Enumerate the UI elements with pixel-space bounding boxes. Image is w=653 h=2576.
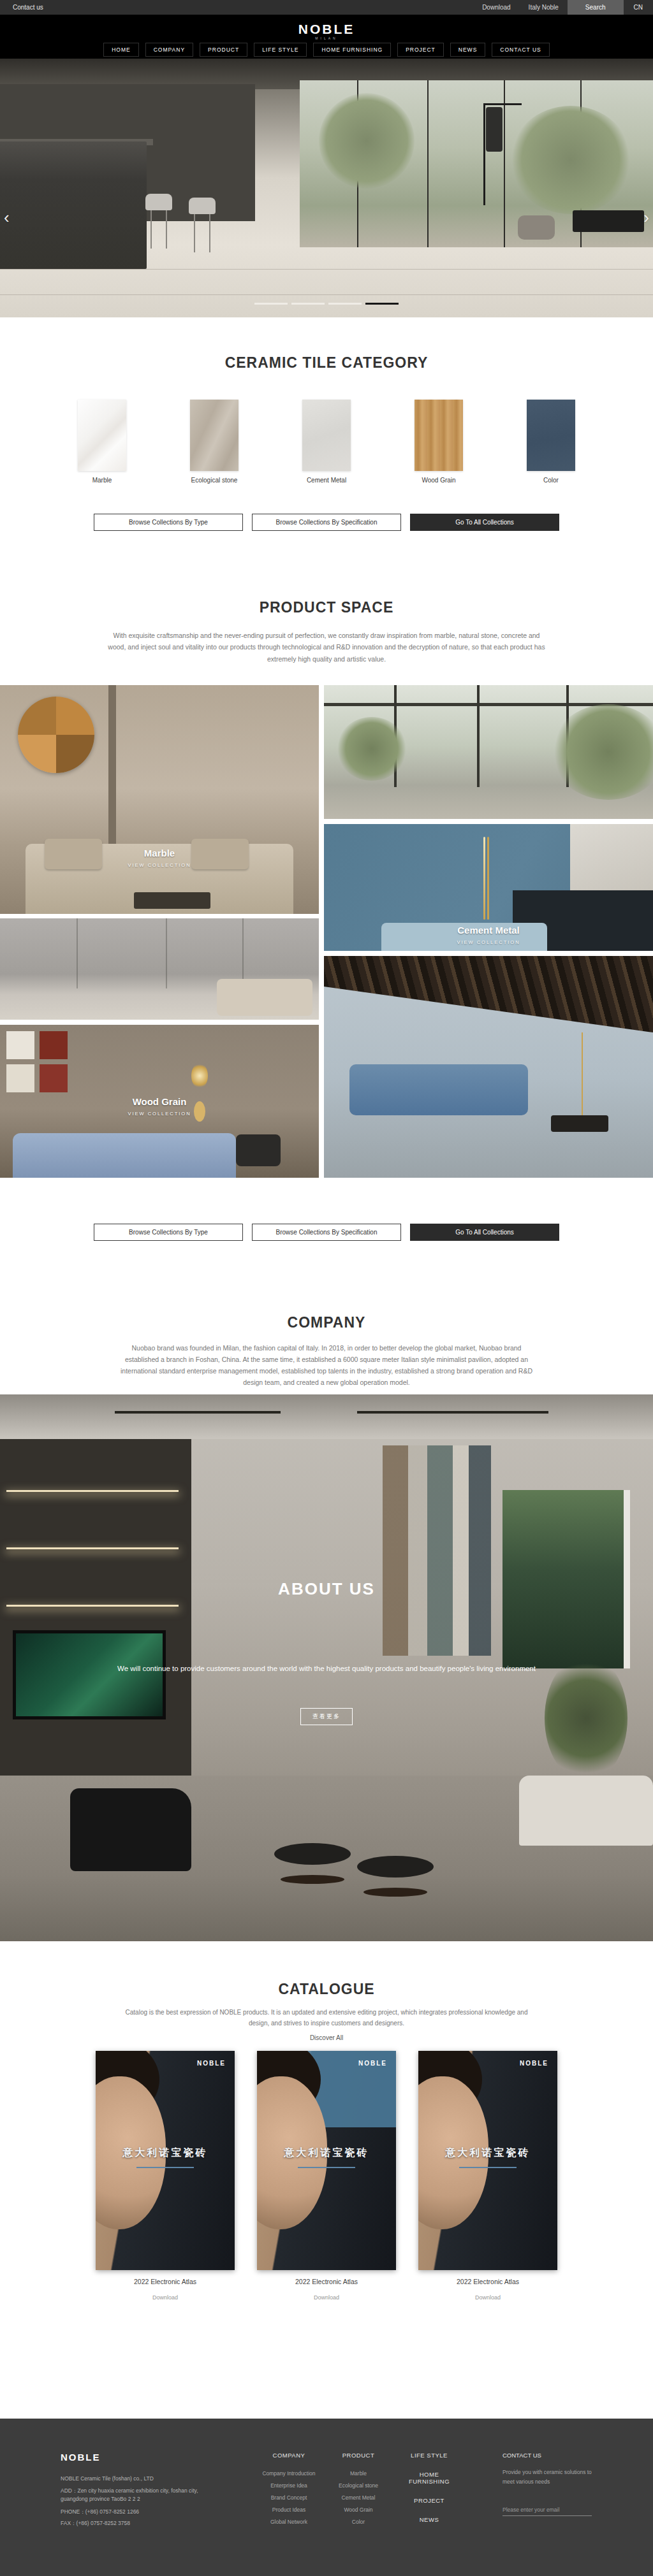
- hero-stool-art: [189, 198, 216, 214]
- footer-link-cement-metal[interactable]: Cement Metal: [326, 2492, 390, 2504]
- space-card-wood-grain[interactable]: Wood Grain VIEW COLLECTION: [0, 1025, 319, 1178]
- search-button[interactable]: Search: [568, 0, 624, 15]
- white-sofa-art: [519, 1776, 653, 1846]
- tile-swatch-wood-grain[interactable]: [415, 400, 463, 471]
- download-link[interactable]: Download: [473, 4, 519, 11]
- nav-item-contact-us[interactable]: CONTACT US: [492, 43, 549, 57]
- catalogue-covers: NOBLE 意大利诺宝瓷砖 NOBLE 意大利诺宝瓷砖 NOBLE 意大利诺宝瓷…: [0, 2051, 653, 2270]
- cover-title-cn: 意大利诺宝瓷砖: [96, 2146, 235, 2160]
- footer-column-company: COMPANY Company Introduction Enterprise …: [247, 2452, 330, 2528]
- space-card-label: Cement Metal: [324, 925, 653, 936]
- category-section-title: CERAMIC TILE CATEGORY: [0, 354, 653, 372]
- category-tile-labels: Marble Ecological stone Cement Metal Woo…: [0, 477, 653, 484]
- cover-brand-logo: NOBLE: [358, 2060, 387, 2067]
- space-card-marble[interactable]: Marble VIEW COLLECTION: [0, 685, 319, 914]
- catalogue-description: Catalog is the best expression of NOBLE …: [122, 2008, 531, 2029]
- space-card-concrete[interactable]: [0, 918, 319, 1020]
- tile-swatch-marble[interactable]: [78, 400, 126, 471]
- category-tiles: [0, 400, 653, 471]
- nav-item-life-style[interactable]: LIFE STYLE: [254, 43, 307, 57]
- top-utility-bar: Contact us Download Italy Noble Search C…: [0, 0, 653, 15]
- space-card-label: Wood Grain: [0, 1096, 319, 1107]
- newsletter-email-input[interactable]: [503, 2504, 592, 2516]
- tile-swatch-ecological-stone[interactable]: [190, 400, 238, 471]
- wall-art-circle: [18, 697, 94, 773]
- product-space-grid: Marble VIEW COLLECTION Cement Metal: [0, 685, 653, 1178]
- nav-item-product[interactable]: PRODUCT: [200, 43, 247, 57]
- footer-link-global-network[interactable]: Global Network: [247, 2516, 330, 2528]
- hero-pouf-art: [518, 215, 555, 240]
- hero-slide-indicators: [0, 303, 653, 305]
- footer-phone: PHONE：(+86) 0757-8252 1266: [61, 2508, 220, 2516]
- footer-column-product: PRODUCT Marble Ecological stone Cement M…: [326, 2452, 390, 2528]
- hero-stool-art: [145, 194, 172, 210]
- browse-by-type-button[interactable]: Browse Collections By Type: [94, 1224, 243, 1241]
- catalogue-section-title: CATALOGUE: [0, 1981, 653, 1998]
- all-collections-button[interactable]: Go To All Collections: [410, 514, 559, 531]
- footer-link-marble[interactable]: Marble: [326, 2468, 390, 2480]
- topbar-right-group: Download Italy Noble Search CN: [473, 0, 653, 15]
- tile-label-ecological-stone: Ecological stone: [190, 477, 238, 484]
- browse-by-type-button[interactable]: Browse Collections By Type: [94, 514, 243, 531]
- space-card-exterior[interactable]: [324, 685, 653, 819]
- footer-contact-column: CONTACT US Provide you with ceramic solu…: [503, 2452, 598, 2516]
- footer-link-enterprise-idea[interactable]: Enterprise Idea: [247, 2480, 330, 2492]
- tile-label-wood-grain: Wood Grain: [415, 477, 463, 484]
- tile-label-cement-metal: Cement Metal: [302, 477, 351, 484]
- company-section-title: COMPANY: [0, 1314, 653, 1331]
- view-collection-link[interactable]: VIEW COLLECTION: [324, 939, 653, 945]
- footer-fax: FAX：(+86) 0757-8252 3758: [61, 2519, 220, 2528]
- nav-item-news[interactable]: NEWS: [450, 43, 486, 57]
- italy-noble-link[interactable]: Italy Noble: [520, 4, 568, 11]
- main-nav: HOME COMPANY PRODUCT LIFE STYLE HOME FUR…: [0, 43, 653, 57]
- catalogue-item-title: 2022 Electronic Atlas: [257, 2278, 396, 2285]
- footer-link-color[interactable]: Color: [326, 2516, 390, 2528]
- footer-column-title: COMPANY: [247, 2452, 330, 2459]
- catalogue-item-title: 2022 Electronic Atlas: [418, 2278, 557, 2285]
- browse-by-specification-button[interactable]: Browse Collections By Specification: [252, 1224, 401, 1241]
- slide-indicator-3[interactable]: [328, 303, 362, 305]
- about-us-banner: ABOUT US We will continue to provide cus…: [0, 1394, 653, 1941]
- footer-link-project[interactable]: PROJECT: [400, 2497, 458, 2504]
- showroom-shelves-art: [0, 1439, 191, 1796]
- footer-column-title: PRODUCT: [326, 2452, 390, 2459]
- footer-address: ADD：Zen city huaxia ceramic exhibition c…: [61, 2487, 220, 2503]
- footer-link-brand-concept[interactable]: Brand Concept: [247, 2492, 330, 2504]
- cover-title-cn: 意大利诺宝瓷砖: [257, 2146, 396, 2160]
- footer-link-home-furnishing[interactable]: HOME FURNISHING: [400, 2471, 458, 2485]
- catalogue-item-title: 2022 Electronic Atlas: [96, 2278, 235, 2285]
- site-footer: NOBLE NOBLE Ceramic Tile (foshan) co., L…: [0, 2419, 653, 2576]
- download-link[interactable]: Download: [418, 2294, 557, 2301]
- footer-contact-text: Provide you with ceramic solutions to me…: [503, 2468, 598, 2487]
- site-header: NOBLE MILAN HOME COMPANY PRODUCT LIFE ST…: [0, 15, 653, 59]
- about-more-button[interactable]: 查看更多: [300, 1708, 353, 1725]
- product-space-buttons-row: Browse Collections By Type Browse Collec…: [0, 1224, 653, 1241]
- download-link[interactable]: Download: [257, 2294, 396, 2301]
- tile-label-color: Color: [527, 477, 575, 484]
- footer-link-wood-grain[interactable]: Wood Grain: [326, 2504, 390, 2516]
- brand-logo-subtitle: MILAN: [0, 36, 653, 40]
- tile-swatch-color[interactable]: [527, 400, 575, 471]
- catalogue-cover-1[interactable]: NOBLE 意大利诺宝瓷砖: [96, 2051, 235, 2270]
- footer-brand-logo: NOBLE: [61, 2452, 101, 2463]
- view-collection-link[interactable]: VIEW COLLECTION: [0, 1111, 319, 1117]
- browse-by-specification-button[interactable]: Browse Collections By Specification: [252, 514, 401, 531]
- lounge-chair-art: [70, 1788, 191, 1871]
- catalogue-cover-3[interactable]: NOBLE 意大利诺宝瓷砖: [418, 2051, 557, 2270]
- footer-contact-title: CONTACT US: [503, 2452, 598, 2459]
- footer-link-news[interactable]: NEWS: [400, 2516, 458, 2523]
- catalogue-download-links: Download Download Download: [0, 2294, 653, 2301]
- discover-all-link[interactable]: Discover All: [0, 2034, 653, 2041]
- nav-item-company[interactable]: COMPANY: [145, 43, 193, 57]
- footer-link-life-style[interactable]: LIFE STYLE: [400, 2452, 458, 2459]
- download-link[interactable]: Download: [96, 2294, 235, 2301]
- slide-indicator-1[interactable]: [254, 303, 288, 305]
- product-space-description: With exquisite craftsmanship and the nev…: [106, 630, 547, 665]
- hero-bench-art: [573, 210, 644, 232]
- language-switch-cn[interactable]: CN: [624, 4, 653, 11]
- all-collections-button[interactable]: Go To All Collections: [410, 1224, 559, 1241]
- footer-link-product-ideas[interactable]: Product Ideas: [247, 2504, 330, 2516]
- cover-brand-logo: NOBLE: [197, 2060, 226, 2067]
- page: Contact us Download Italy Noble Search C…: [0, 0, 653, 2576]
- brand-logo[interactable]: NOBLE: [0, 22, 653, 37]
- space-card-label: Marble: [0, 848, 319, 858]
- plant-art: [545, 1654, 627, 1782]
- company-description: Nuobao brand was founded in Milan, the f…: [116, 1342, 537, 1388]
- footer-link-ecological-stone[interactable]: Ecological stone: [326, 2480, 390, 2492]
- product-space-title: PRODUCT SPACE: [0, 599, 653, 616]
- slide-indicator-4-active[interactable]: [365, 303, 399, 305]
- about-us-title: ABOUT US: [0, 1579, 653, 1599]
- tile-display-art: [383, 1445, 491, 1656]
- catalogue-item-titles: 2022 Electronic Atlas 2022 Electronic At…: [0, 2278, 653, 2285]
- space-card-cement-metal[interactable]: Cement Metal VIEW COLLECTION: [324, 824, 653, 951]
- footer-link-company-introduction[interactable]: Company Introduction: [247, 2468, 330, 2480]
- space-card-slat-ceiling[interactable]: [324, 956, 653, 1178]
- footer-company-name: NOBLE Ceramic Tile (foshan) co., LTD: [61, 2475, 220, 2483]
- catalogue-cover-2[interactable]: NOBLE 意大利诺宝瓷砖: [257, 2051, 396, 2270]
- tile-label-marble: Marble: [78, 477, 126, 484]
- tile-swatch-cement-metal[interactable]: [302, 400, 351, 471]
- hero-prev-icon[interactable]: ‹: [4, 209, 10, 226]
- hero-next-icon[interactable]: ›: [643, 209, 649, 226]
- cover-brand-logo: NOBLE: [520, 2060, 548, 2067]
- nav-item-project[interactable]: PROJECT: [397, 43, 444, 57]
- about-us-tagline: We will continue to provide customers ar…: [103, 1661, 550, 1677]
- cover-title-cn: 意大利诺宝瓷砖: [418, 2146, 557, 2160]
- slide-indicator-2[interactable]: [291, 303, 325, 305]
- view-collection-link[interactable]: VIEW COLLECTION: [0, 862, 319, 868]
- contact-us-link[interactable]: Contact us: [13, 4, 43, 11]
- category-buttons-row: Browse Collections By Type Browse Collec…: [0, 514, 653, 531]
- hero-slider: ‹ ›: [0, 59, 653, 317]
- nav-item-home-furnishing[interactable]: HOME FURNISHING: [313, 43, 391, 57]
- nav-item-home[interactable]: HOME: [103, 43, 139, 57]
- footer-nav-headers: LIFE STYLE HOME FURNISHING PROJECT NEWS: [400, 2452, 458, 2535]
